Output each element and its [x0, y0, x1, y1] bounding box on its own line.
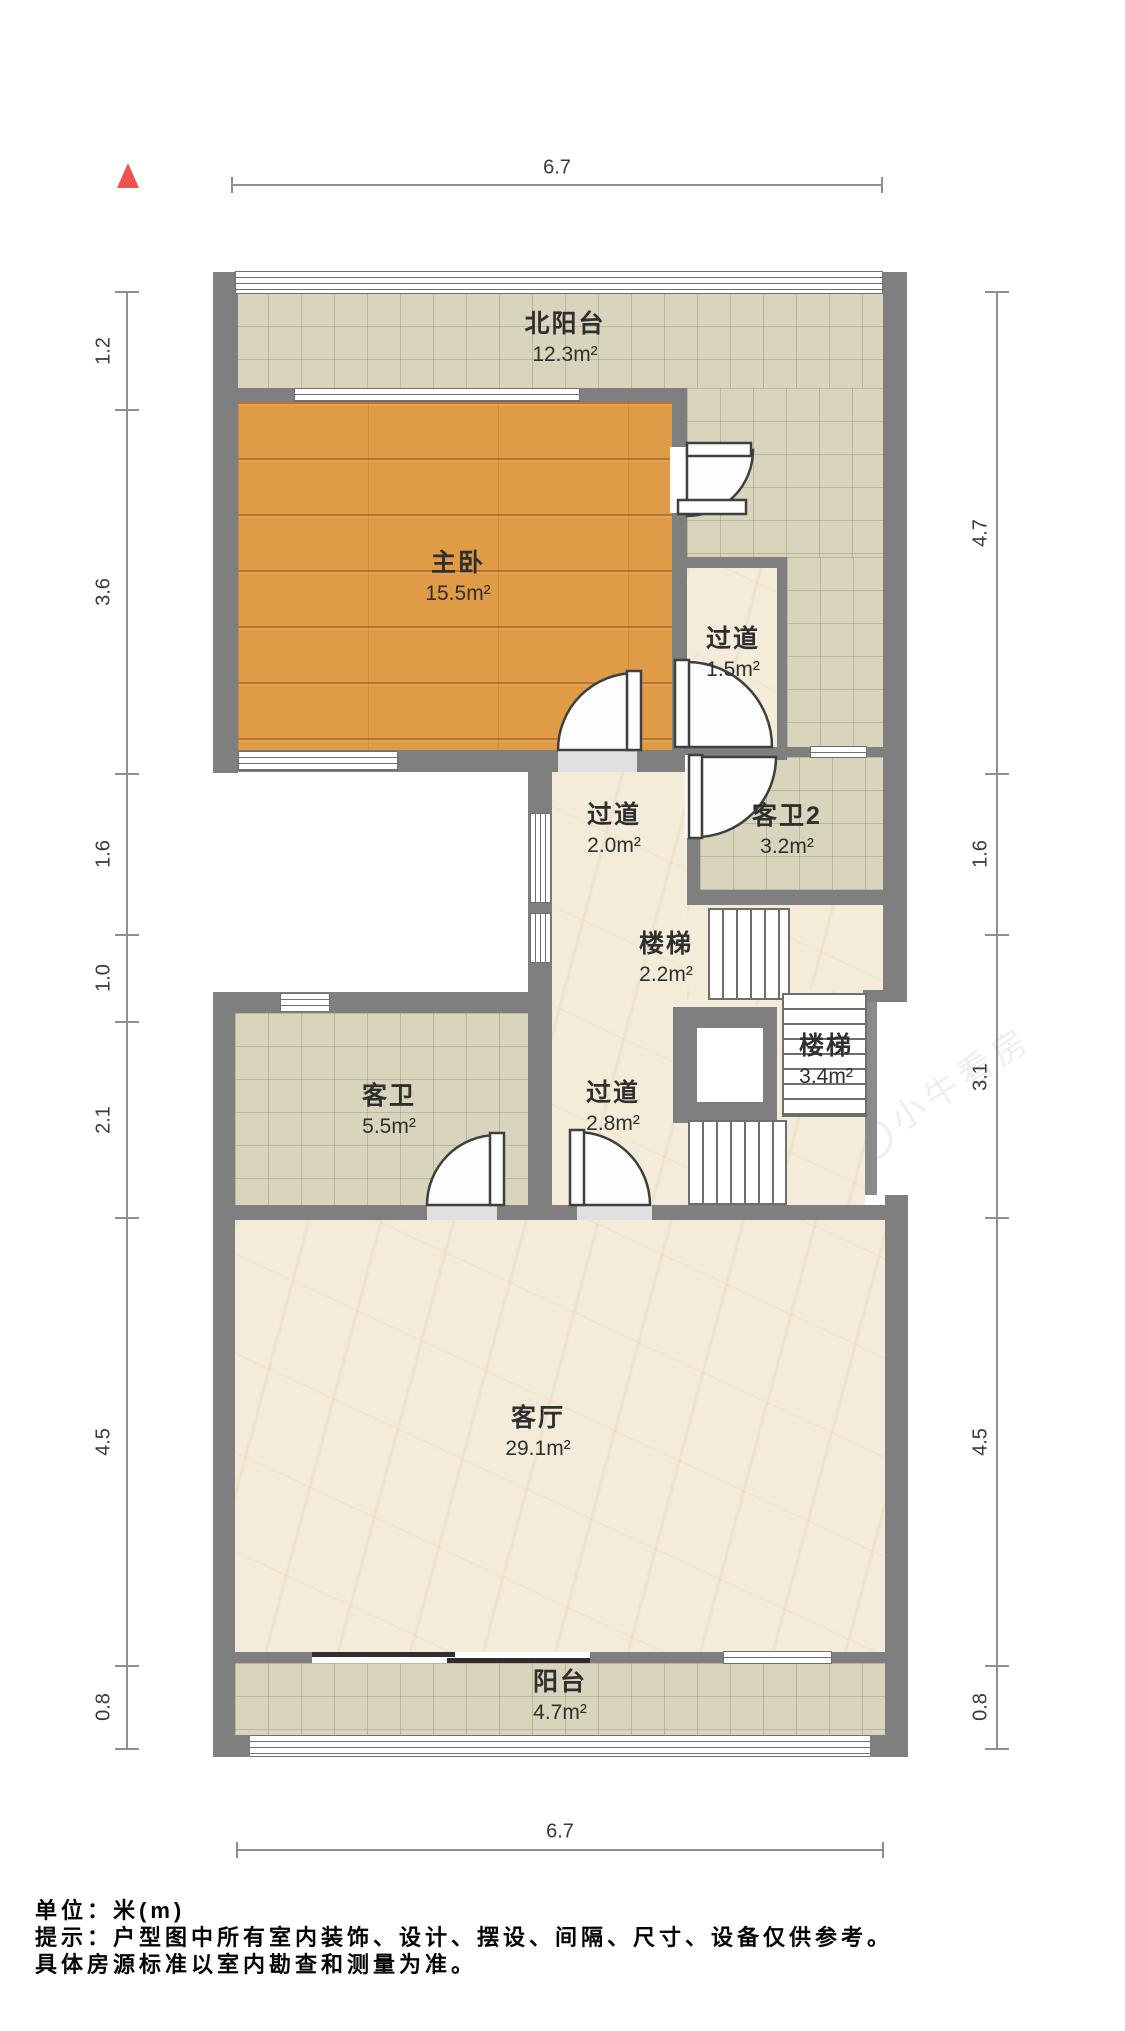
room-label-hallway-3: 过道 2.8m²	[586, 1081, 640, 1134]
room-label-north-balcony: 北阳台 12.3m²	[524, 312, 605, 365]
dimension-tick	[115, 1748, 139, 1750]
door-leaf	[627, 671, 641, 750]
room-label-master-bedroom: 主卧 15.5m²	[425, 551, 490, 604]
door-arc	[577, 1132, 650, 1205]
dimension-tick	[115, 409, 139, 411]
dimension-tick	[882, 1842, 884, 1858]
dimension-value-right: 3.1	[970, 1063, 993, 1091]
dimension-line-bottom	[237, 1849, 883, 1851]
room-label-living-room: 客厅 29.1m²	[505, 1406, 570, 1459]
dimension-value-left: 0.8	[93, 1693, 116, 1721]
footer-disclaimer-2: 具体房源标准以室内勘查和测量为准。	[35, 1947, 477, 1979]
dimension-tick	[985, 291, 1009, 293]
dimension-value-bottom: 6.7	[546, 1821, 574, 1844]
dimension-value-left: 1.6	[93, 840, 116, 868]
door-leaf	[675, 660, 689, 747]
room-label-hallway-1: 过道 1.5m²	[706, 627, 760, 680]
door-leaf	[570, 1130, 584, 1205]
dimension-value-left: 1.2	[93, 337, 116, 365]
door-arc	[427, 1135, 497, 1205]
dimension-value-left: 3.6	[93, 578, 116, 606]
dimension-value-right: 4.7	[970, 519, 993, 547]
room-label-guest-bath: 客卫 5.5m²	[362, 1084, 416, 1137]
room-label-hallway-2: 过道 2.0m²	[587, 803, 641, 856]
room-label-stairs-1: 楼梯 2.2m²	[639, 932, 693, 985]
north-arrow-icon	[117, 163, 139, 188]
dimension-tick	[115, 934, 139, 936]
room-label-guest-bath-2: 客卫2 3.2m²	[752, 804, 822, 857]
dimension-value-left: 2.1	[93, 1106, 116, 1134]
dimension-value-left: 1.0	[93, 964, 116, 992]
door-leaf	[678, 500, 746, 514]
dimension-value-right: 0.8	[970, 1693, 993, 1721]
door-leaf	[687, 443, 751, 456]
dimension-value-right: 1.6	[970, 840, 993, 868]
dimension-tick	[881, 177, 883, 193]
door-swings	[0, 0, 1125, 2031]
dimension-tick	[115, 1217, 139, 1219]
room-label-stairs-2: 楼梯 3.4m²	[799, 1034, 853, 1087]
dimension-value-top: 6.7	[543, 157, 571, 180]
dimension-tick	[985, 1748, 1009, 1750]
floor-plan: 小牛看房 小牛看房 小牛看房	[0, 0, 1125, 2031]
dimension-tick	[985, 934, 1009, 936]
room-label-balcony: 阳台 4.7m²	[533, 1670, 587, 1723]
dimension-tick	[236, 1842, 238, 1858]
dimension-tick	[115, 773, 139, 775]
dimension-tick	[115, 1021, 139, 1023]
dimension-tick	[985, 1217, 1009, 1219]
door-leaf	[490, 1133, 504, 1205]
dimension-value-right: 4.5	[970, 1428, 993, 1456]
dimension-line-top	[232, 184, 882, 186]
door-arc	[558, 673, 635, 750]
dimension-tick	[231, 177, 233, 193]
door-leaf	[689, 755, 702, 838]
dimension-tick	[985, 1665, 1009, 1667]
dimension-tick	[985, 773, 1009, 775]
dimension-value-left: 4.5	[93, 1428, 116, 1456]
dimension-tick	[115, 1665, 139, 1667]
dimension-line-right	[996, 292, 998, 1749]
dimension-tick	[115, 291, 139, 293]
